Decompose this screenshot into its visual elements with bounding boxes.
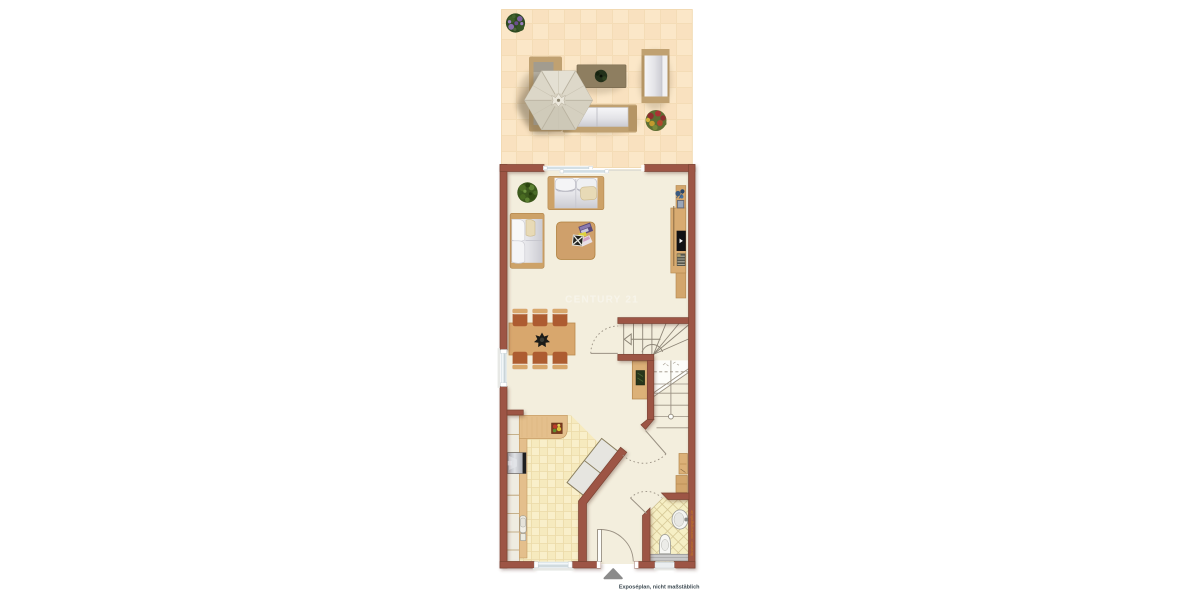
svg-text:CENTURY 21: CENTURY 21 — [565, 295, 639, 306]
svg-text:Illustration: wohnungsgrafik.d: Illustration: wohnungsgrafik.de — [690, 510, 694, 556]
svg-text:Exposéplan, nicht maßstäblich: Exposéplan, nicht maßstäblich — [619, 585, 700, 591]
